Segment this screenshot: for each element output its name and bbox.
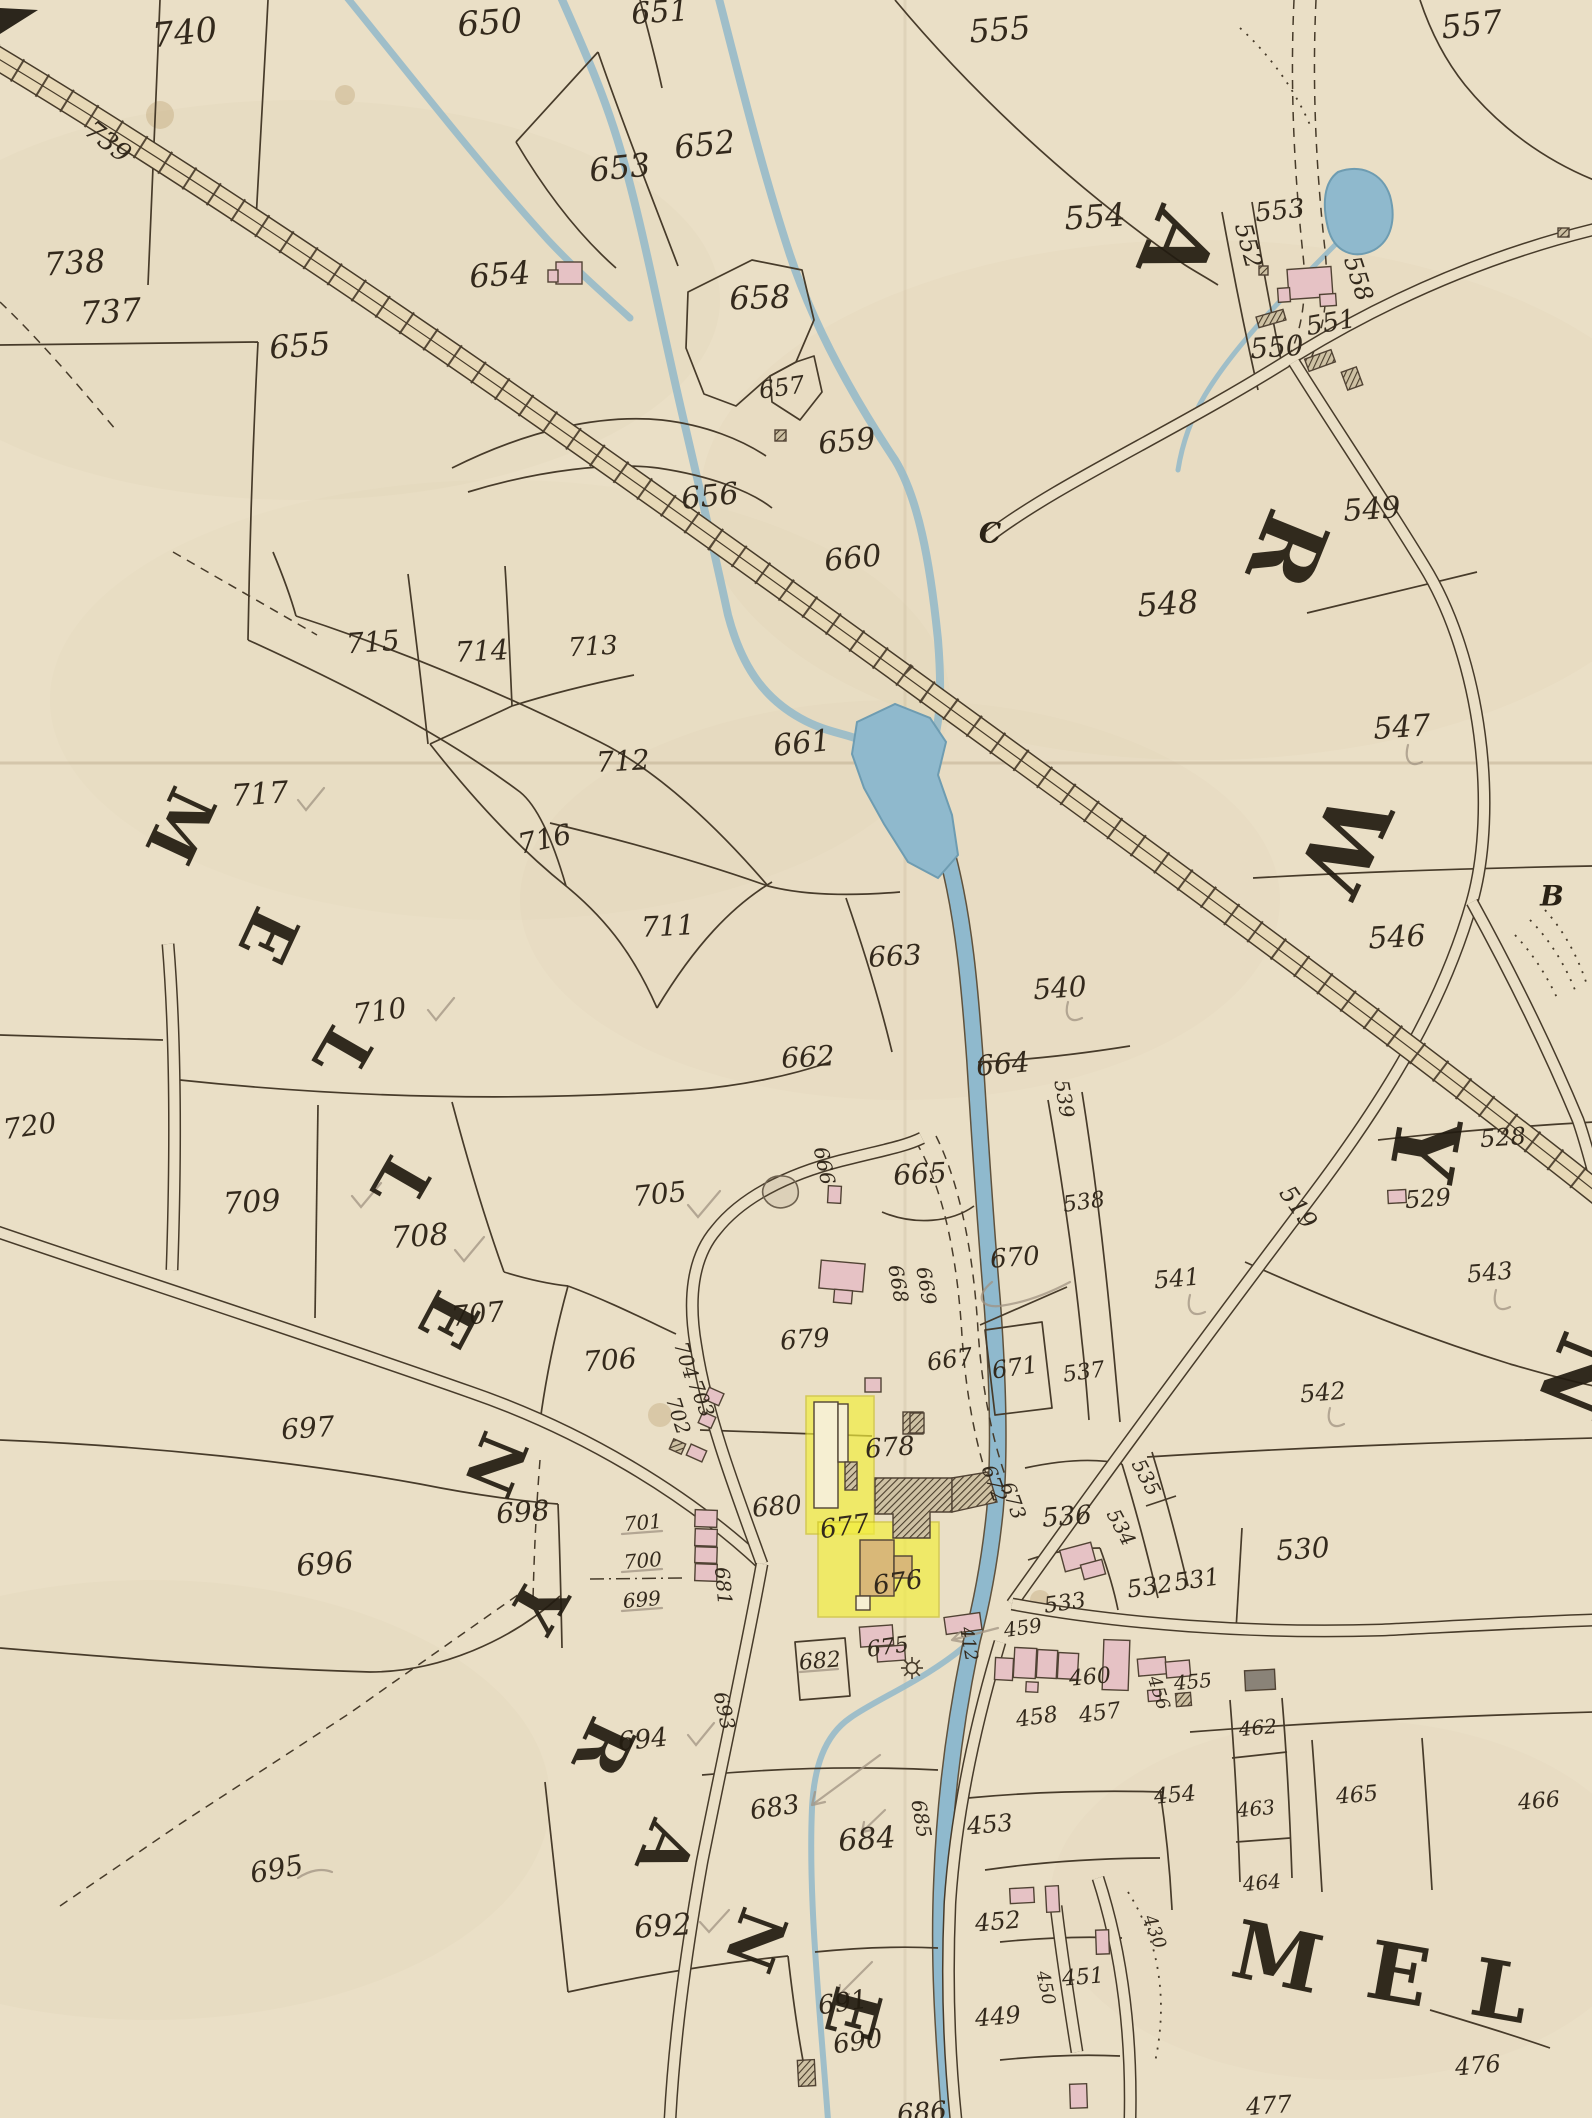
parcel-label-548: 548 [1136, 582, 1200, 624]
parcel-label-653: 653 [587, 145, 652, 189]
parcel-label-706: 706 [582, 1342, 638, 1379]
parcel-label-536: 536 [1041, 1500, 1093, 1533]
parcel-label-451: 451 [1060, 1963, 1105, 1992]
parcel-label-464: 464 [1241, 1869, 1282, 1896]
parcel-label-463: 463 [1235, 1795, 1276, 1822]
building-dark [1259, 266, 1268, 275]
building-dark [910, 1413, 924, 1433]
parcel-label-670: 670 [989, 1241, 1041, 1274]
parcel-label-449: 449 [973, 2001, 1022, 2033]
parcel-label-546: 546 [1367, 919, 1426, 957]
reference-letter-B: B [1539, 880, 1564, 913]
parcel-label-455: 455 [1172, 1668, 1213, 1695]
parcel-label-654: 654 [468, 253, 532, 295]
tree-symbol [763, 1176, 799, 1208]
parcel-label-554: 554 [1063, 195, 1127, 237]
parcel-label-705: 705 [631, 1175, 688, 1213]
building-gray [1244, 1669, 1275, 1691]
parcel-label-542: 542 [1299, 1377, 1347, 1409]
parcel-label-711: 711 [640, 908, 695, 944]
building-pink [1013, 1647, 1037, 1678]
parcel-label-709: 709 [222, 1183, 282, 1222]
parcel-label-679: 679 [779, 1323, 831, 1356]
building-pink [833, 1289, 852, 1304]
parcel-label-700: 700 [623, 1547, 663, 1574]
parcel-label-737: 737 [79, 290, 143, 332]
parcel-label-453: 453 [965, 1809, 1014, 1841]
parcel-label-717: 717 [230, 775, 290, 814]
parcel-label-665: 665 [892, 1156, 947, 1192]
building-pink [695, 1529, 718, 1547]
building-pink [1026, 1682, 1039, 1693]
parcel-label-553: 553 [1254, 193, 1307, 228]
parcel-label-684: 684 [837, 1820, 897, 1859]
building-pink [1045, 1886, 1059, 1913]
building-pink [556, 262, 582, 284]
parcel-label-713: 713 [567, 631, 618, 664]
parcel-label-712: 712 [595, 743, 650, 779]
paper-stain [146, 101, 174, 129]
parcel-label-664: 664 [975, 1045, 1031, 1083]
map-viewport[interactable]: 7406506516526536546556586576596566606615… [0, 0, 1592, 2118]
parcel-label-452: 452 [973, 1906, 1022, 1938]
building-pink [994, 1658, 1013, 1681]
parcel-label-460: 460 [1067, 1663, 1112, 1692]
parcel-label-543: 543 [1466, 1257, 1514, 1289]
building-dark [775, 430, 786, 441]
parcel-label-661: 661 [772, 723, 833, 764]
cadastral-map-canvas[interactable]: 7406506516526536546556586576596566606615… [0, 0, 1592, 2118]
parcel-label-477: 477 [1244, 2090, 1293, 2118]
building-pale [814, 1402, 838, 1508]
parcel-label-692: 692 [633, 1907, 693, 1946]
building-pink [865, 1378, 881, 1392]
parcel-label-699: 699 [622, 1586, 662, 1613]
parcel-label-696: 696 [295, 1545, 355, 1584]
parcel-label-656: 656 [680, 476, 741, 517]
parcel-label-466: 466 [1516, 1787, 1561, 1816]
pond [1325, 169, 1393, 254]
parcel-label-708: 708 [390, 1217, 450, 1256]
building-pink [1036, 1649, 1057, 1678]
parcel-label-550: 550 [1249, 329, 1305, 366]
parcel-label-651: 651 [630, 0, 690, 32]
parcel-label-682: 682 [798, 1647, 842, 1676]
road-label-681: 681 [710, 1566, 737, 1606]
building-pink [1096, 1930, 1110, 1954]
building-pink [1320, 293, 1337, 306]
parcel-label-528: 528 [1479, 1122, 1527, 1153]
parcel-label-540: 540 [1032, 970, 1088, 1007]
parcel-label-678: 678 [864, 1431, 916, 1464]
parcel-label-697: 697 [280, 1410, 336, 1447]
parcel-label-714: 714 [454, 633, 509, 669]
parcel-label-740: 740 [150, 10, 219, 57]
parcel-label-476: 476 [1453, 2050, 1502, 2082]
parcel-label-738: 738 [43, 241, 107, 283]
parcel-label-659: 659 [817, 421, 878, 462]
parcel-label-529: 529 [1404, 1183, 1452, 1214]
parcel-label-686: 686 [896, 2096, 948, 2118]
parcel-label-549: 549 [1342, 490, 1402, 529]
parcel-label-547: 547 [1372, 708, 1432, 747]
reference-letter-C: C [979, 517, 1002, 550]
dashdot-boundary [590, 1578, 683, 1579]
parcel-label-462: 462 [1237, 1714, 1278, 1741]
parcel-label-680: 680 [751, 1490, 803, 1523]
parcel-label-662: 662 [780, 1039, 835, 1075]
parcel-label-658: 658 [729, 277, 791, 317]
building-pink [1278, 288, 1291, 303]
parcel-label-530: 530 [1275, 1531, 1331, 1568]
paper-stain [335, 85, 355, 105]
parcel-label-557: 557 [1439, 2, 1504, 46]
building-dark [845, 1462, 857, 1490]
parcel-label-465: 465 [1334, 1781, 1379, 1810]
building-pink [695, 1547, 718, 1564]
building-pink [828, 1186, 842, 1204]
building-pale [856, 1596, 870, 1610]
parcel-label-701: 701 [623, 1509, 663, 1536]
building-pink [1070, 2084, 1088, 2109]
parcel-label-454: 454 [1152, 1781, 1197, 1810]
building-pink [819, 1260, 865, 1292]
parcel-label-541: 541 [1153, 1263, 1201, 1295]
parcel-label-555: 555 [968, 8, 1032, 50]
building-pink [695, 1510, 718, 1528]
parcel-label-650: 650 [456, 1, 524, 45]
building-pink [1010, 1887, 1035, 1903]
building-pale [838, 1404, 848, 1462]
parcel-label-660: 660 [823, 538, 884, 579]
building-pink [548, 270, 558, 282]
parcel-label-663: 663 [867, 938, 922, 974]
parcel-label-715: 715 [345, 624, 401, 661]
parcel-label-655: 655 [268, 324, 332, 366]
parcel-label-652: 652 [672, 122, 737, 166]
building-dark [797, 2060, 815, 2087]
building-dark [1558, 228, 1569, 237]
